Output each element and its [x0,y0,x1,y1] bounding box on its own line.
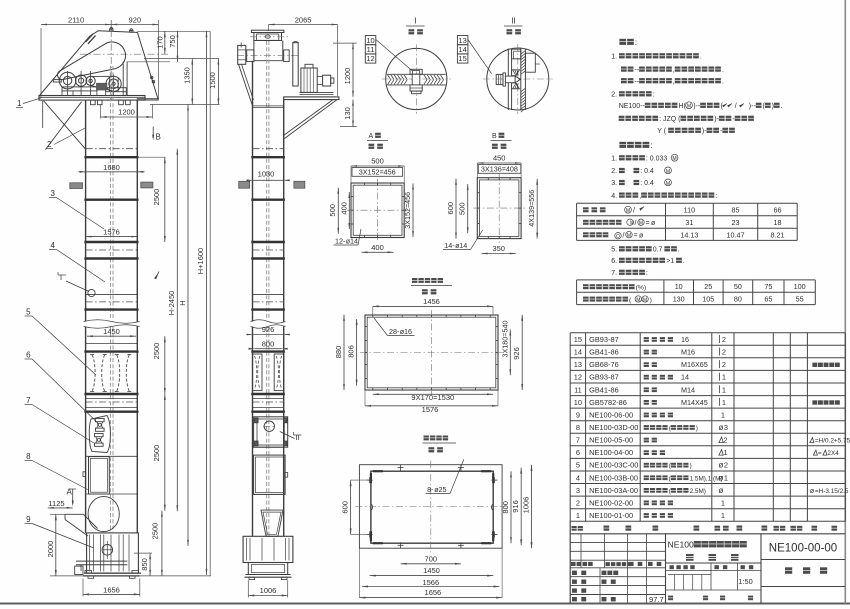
svg-text:=H-3.15/2.5: =H-3.15/2.5 [815,488,849,495]
svg-text:2500: 2500 [152,343,161,360]
svg-text:2110: 2110 [68,15,84,24]
svg-text:ø: ø [718,486,723,495]
svg-text:M14: M14 [681,385,695,394]
svg-text:M: M [636,298,640,304]
svg-text:2: 2 [724,461,728,470]
svg-text:M: M [672,156,676,162]
svg-text:1006: 1006 [522,497,531,514]
svg-text:18: 18 [774,218,782,227]
svg-text:M: M [626,208,630,214]
svg-text:=: = [634,233,638,240]
svg-text:6.: 6. [611,258,617,265]
svg-text:GB41-86: GB41-86 [589,348,619,357]
svg-text:NE100-01-00: NE100-01-00 [589,511,633,520]
svg-text:A: A [369,133,374,140]
svg-text:1030: 1030 [258,169,275,178]
svg-text:10: 10 [574,398,582,407]
svg-text:9: 9 [26,515,31,524]
svg-text:ø: ø [639,233,644,240]
svg-text:850: 850 [140,558,149,571]
svg-text:170: 170 [155,36,164,49]
svg-text:23: 23 [732,218,740,227]
svg-text:M: M [666,169,670,175]
svg-text:2.: 2. [611,168,617,175]
svg-text:2.5M): 2.5M) [690,488,706,495]
svg-text:1450: 1450 [423,566,440,575]
svg-text:55: 55 [796,294,804,303]
svg-text:2500: 2500 [152,189,161,206]
svg-text:1: 1 [721,498,725,507]
svg-text:M: M [666,181,670,187]
svg-text:1350: 1350 [183,67,192,84]
svg-text:11: 11 [367,45,375,54]
svg-text:5: 5 [26,308,31,317]
svg-text:7.: 7. [611,270,617,277]
svg-text:1576: 1576 [103,227,120,236]
svg-text:4.: 4. [611,193,617,200]
svg-text:/: / [623,233,625,240]
svg-text:800: 800 [262,339,275,348]
svg-text:14-: 14- [444,241,455,250]
svg-text:1: 1 [724,473,728,482]
svg-text::: : [653,92,655,99]
svg-text:66: 66 [774,206,782,215]
svg-text:GB93-87: GB93-87 [589,335,619,344]
svg-text:1: 1 [17,99,22,108]
svg-text:130: 130 [673,294,685,303]
svg-text:/: / [633,208,635,215]
svg-text:700: 700 [425,554,438,563]
svg-text:1656: 1656 [425,588,442,597]
svg-text:1576: 1576 [422,405,439,414]
svg-text:10.47: 10.47 [727,231,745,240]
svg-text::: : [715,193,717,200]
svg-text:400: 400 [371,243,384,252]
svg-text:3X136=408: 3X136=408 [481,165,518,174]
svg-text:1680: 1680 [103,163,120,172]
svg-text:15: 15 [574,335,582,344]
svg-text:NE100-00-00: NE100-00-00 [769,543,837,555]
svg-text:=: = [646,220,650,227]
svg-text:3: 3 [51,189,56,198]
svg-text:500: 500 [458,202,467,215]
svg-text:ø: ø [718,461,723,470]
svg-text:=: = [818,450,822,457]
svg-text:.: . [700,54,702,61]
svg-text:12: 12 [574,373,582,382]
svg-text:1500: 1500 [208,72,217,89]
svg-text:GB93-87: GB93-87 [589,373,619,382]
svg-text:1: 1 [722,398,726,407]
svg-text:Y (: Y ( [657,128,666,135]
svg-text:6: 6 [576,448,580,457]
svg-text:14: 14 [458,45,466,54]
svg-text:11: 11 [574,385,582,394]
svg-text:6: 6 [26,351,31,360]
svg-text:97.7: 97.7 [649,595,664,604]
svg-text:25: 25 [439,485,447,494]
svg-text:14: 14 [681,373,689,382]
svg-text:M16: M16 [681,348,695,357]
svg-text:14: 14 [459,241,467,250]
svg-text:H(: H( [679,103,687,110]
svg-text:1:50: 1:50 [738,577,752,586]
svg-text:/: / [635,220,637,227]
svg-text:: 0.4: : 0.4 [640,168,654,175]
svg-text:25: 25 [704,282,712,291]
svg-text:5: 5 [576,461,580,470]
svg-text:350: 350 [492,244,505,253]
svg-text:4X139=556: 4X139=556 [527,190,536,227]
svg-text:: JZQ (: : JZQ ( [659,116,681,123]
svg-text:130: 130 [343,107,352,120]
svg-text:500: 500 [371,157,384,166]
svg-text:): ) [696,425,698,432]
svg-text::: : [646,270,648,277]
svg-text::: : [650,141,652,150]
svg-text:>1: >1 [666,258,674,265]
svg-text:1200: 1200 [118,108,135,117]
svg-text:920: 920 [129,15,142,24]
svg-text:7: 7 [576,436,580,445]
svg-text:8.21: 8.21 [771,231,785,240]
svg-text:.: . [722,67,724,74]
svg-text:GB5782-86: GB5782-86 [589,398,627,407]
svg-text:750: 750 [168,35,177,48]
svg-text::: : [635,38,637,47]
svg-text:400: 400 [340,202,349,215]
svg-text:500: 500 [328,204,337,217]
svg-text:)-: )- [702,128,707,135]
svg-text:450: 450 [493,154,506,163]
svg-text:II: II [511,17,515,26]
svg-text:1450: 1450 [103,327,120,336]
svg-text:NE100--: NE100-- [619,103,646,110]
svg-text:2: 2 [723,436,727,445]
svg-text:3: 3 [576,486,580,495]
svg-text:1656: 1656 [103,585,120,594]
svg-text:600: 600 [446,202,455,215]
svg-text:14.13: 14.13 [680,231,698,240]
svg-text:NE100-06-00: NE100-06-00 [589,410,633,419]
svg-text:NE100-04-00: NE100-04-00 [589,448,633,457]
svg-text:926: 926 [512,347,521,360]
svg-text:1: 1 [721,410,725,419]
svg-text:2500: 2500 [151,523,160,540]
svg-text:NE100-02-00: NE100-02-00 [589,498,633,507]
svg-text:1.: 1. [611,54,617,61]
svg-text:1: 1 [722,385,726,394]
svg-text:M: M [627,233,631,239]
svg-text:: 0.033: : 0.033 [646,156,668,163]
svg-text:13: 13 [458,36,466,45]
svg-text:75: 75 [764,282,772,291]
svg-text:1456: 1456 [423,297,440,306]
svg-text:3.: 3. [611,180,617,187]
svg-text:2500: 2500 [152,445,161,462]
svg-text:600: 600 [341,501,350,514]
svg-text:926: 926 [262,325,275,334]
svg-text:1: 1 [723,448,727,457]
svg-text:M: M [639,221,643,227]
svg-text:3X152=456: 3X152=456 [403,192,412,229]
svg-text:7: 7 [26,396,31,405]
svg-text:9: 9 [576,410,580,419]
svg-text:31: 31 [685,218,693,227]
svg-text:50: 50 [734,282,742,291]
svg-text:.: . [722,78,724,85]
svg-text:0.7: 0.7 [653,247,663,254]
svg-text:12: 12 [366,54,374,63]
svg-text:16: 16 [681,335,689,344]
svg-text:)--: )-- [749,103,757,110]
svg-text:14: 14 [574,348,582,357]
svg-text:12-: 12- [335,237,346,246]
svg-text:4: 4 [576,473,580,482]
svg-text:10: 10 [675,282,683,291]
svg-text:/: / [735,103,737,110]
svg-text:2: 2 [47,140,52,149]
svg-text:M16X65: M16X65 [681,360,708,369]
svg-text:H: H [178,300,187,305]
svg-text:ø: ø [718,473,723,482]
svg-text:NE100-03C-00: NE100-03C-00 [589,461,638,470]
svg-text:1566: 1566 [422,578,439,587]
svg-text:II: II [296,433,300,442]
svg-text:M: M [643,298,647,304]
svg-text:: 0.4: : 0.4 [640,180,654,187]
svg-text:,: , [639,193,641,200]
svg-text:2: 2 [722,335,726,344]
svg-text:16: 16 [404,327,412,336]
svg-text:28-: 28- [389,327,400,336]
svg-text:)-: )- [714,116,719,123]
svg-text:13: 13 [574,360,582,369]
svg-text:B: B [492,133,497,140]
svg-text:3X152=456: 3X152=456 [359,168,396,177]
svg-text:110: 110 [684,206,695,215]
svg-text:2000: 2000 [46,541,55,558]
svg-text:NE100-03A-00: NE100-03A-00 [589,486,638,495]
svg-text:10: 10 [366,36,374,45]
svg-text:2: 2 [576,498,580,507]
svg-text:100: 100 [794,282,806,291]
svg-text:105: 105 [702,294,714,303]
svg-text:1200: 1200 [343,68,352,85]
svg-text:2.: 2. [611,92,617,99]
svg-text:5.: 5. [611,247,617,254]
svg-text:800: 800 [501,501,510,514]
svg-text:O: O [616,234,620,240]
svg-text:.: . [683,258,685,265]
svg-text:NE100-03B-00: NE100-03B-00 [589,473,638,482]
svg-text:1125: 1125 [48,499,64,508]
svg-text:15: 15 [458,54,466,63]
svg-text:)--: )-- [693,103,701,110]
svg-text:2: 2 [722,348,726,357]
svg-text:NE100: NE100 [668,540,694,550]
svg-text:=H/0.2+5.75: =H/0.2+5.75 [815,438,850,445]
svg-text:916: 916 [511,500,520,513]
svg-text:): ) [772,103,774,110]
svg-text:85: 85 [732,206,740,215]
svg-text:ø: ø [651,220,656,227]
svg-text:8: 8 [576,423,580,432]
svg-text:8-: 8- [427,485,434,494]
svg-text:--: -- [635,67,640,74]
svg-text:.: . [678,247,680,254]
svg-text:1006: 1006 [260,586,277,595]
svg-text:): ) [690,463,692,470]
svg-text:(%): (%) [636,284,647,291]
svg-text:1: 1 [721,511,725,520]
svg-text:M14X45: M14X45 [681,398,708,407]
svg-text:3: 3 [724,423,728,432]
svg-text:2065: 2065 [295,15,312,24]
svg-text:2X4: 2X4 [827,450,839,457]
svg-text:8: 8 [26,452,31,461]
svg-text:M: M [687,104,691,110]
svg-text:B: B [156,133,161,142]
svg-text:80: 80 [734,294,742,303]
svg-text:806: 806 [347,345,356,358]
svg-text:H+1600: H+1600 [196,248,205,274]
svg-text:I: I [414,17,416,26]
svg-text:,: , [673,78,675,85]
svg-text:GB68-76: GB68-76 [589,360,619,369]
svg-text:GB41-86: GB41-86 [589,385,619,394]
svg-text:880: 880 [334,346,343,359]
svg-text:1: 1 [722,373,726,382]
svg-text:65: 65 [764,294,772,303]
svg-text:3X180=540: 3X180=540 [500,321,509,358]
svg-text:): ) [650,297,652,304]
svg-text:2: 2 [722,360,726,369]
svg-text:NE100-03D-00: NE100-03D-00 [589,423,638,432]
svg-text:4: 4 [51,241,56,250]
svg-text:1.: 1. [611,156,617,163]
svg-text:.: . [781,103,783,110]
svg-text:H-2450: H-2450 [167,291,176,316]
svg-text:--: -- [635,78,640,85]
svg-text:ø: ø [718,423,723,432]
svg-text:14: 14 [350,237,358,246]
svg-text:1: 1 [576,511,580,520]
svg-text:,: , [673,67,675,74]
svg-text:NE100-05-00: NE100-05-00 [589,436,633,445]
svg-text:I: I [60,273,62,282]
